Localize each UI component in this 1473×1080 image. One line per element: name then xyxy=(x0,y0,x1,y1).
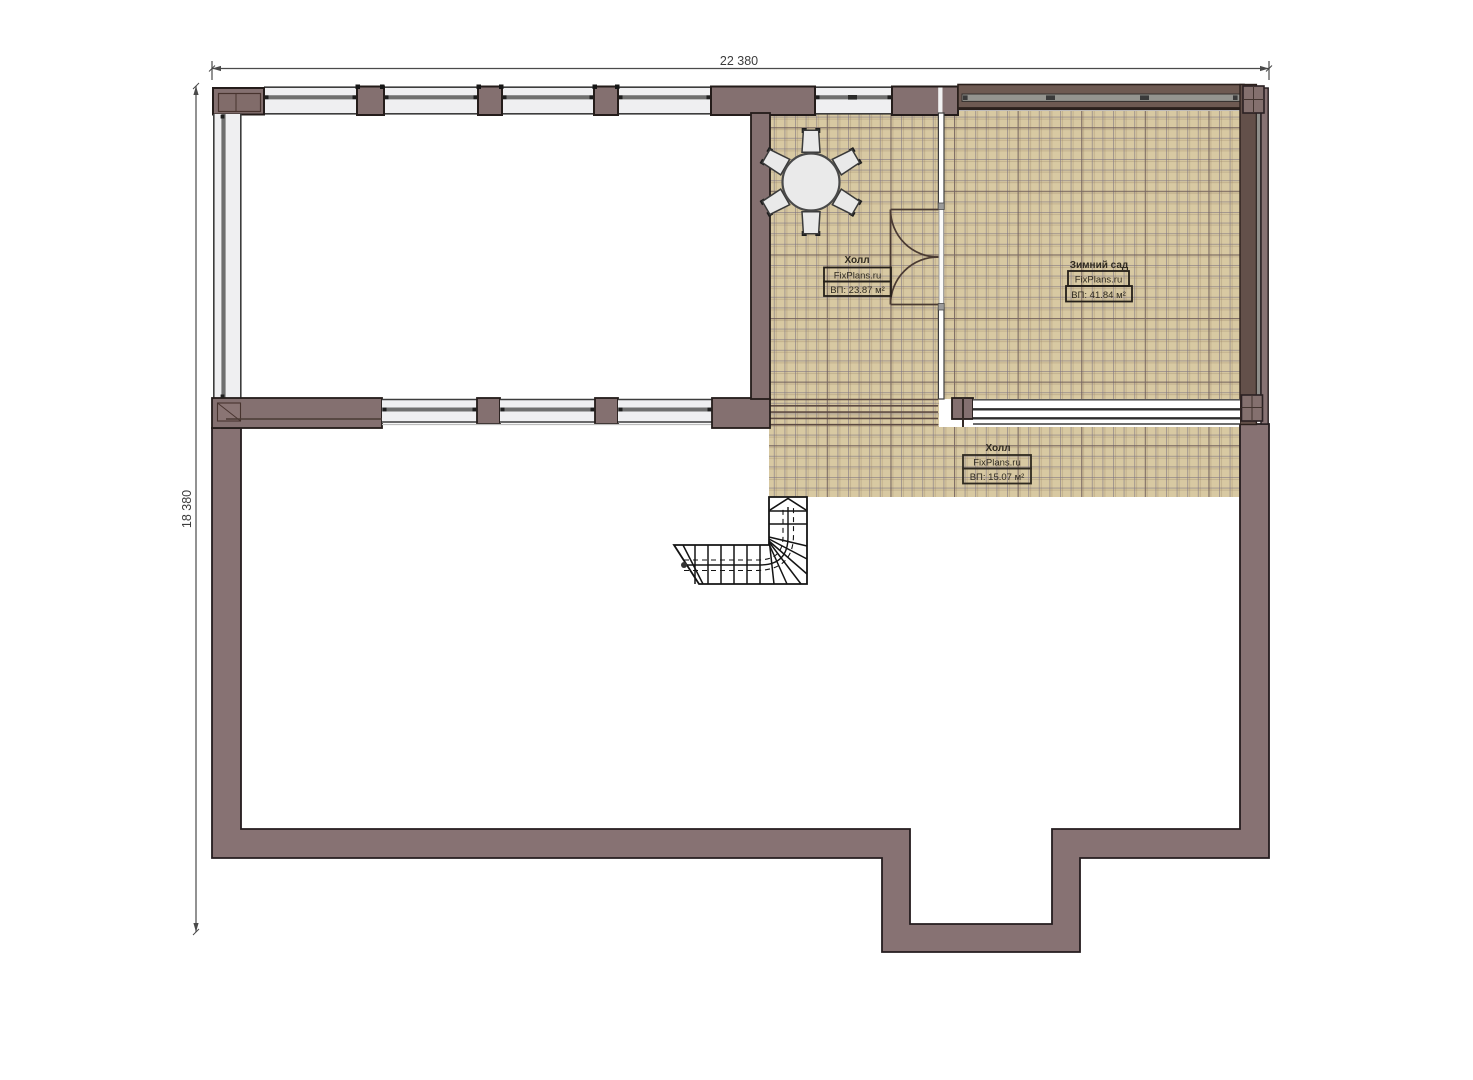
svg-text:ВП: 23.87 м²: ВП: 23.87 м² xyxy=(830,285,885,296)
svg-text:ВП: 15.07 м²: ВП: 15.07 м² xyxy=(970,472,1025,483)
svg-text:Зимний сад: Зимний сад xyxy=(1070,260,1129,271)
svg-text:ВП: 41.84 м²: ВП: 41.84 м² xyxy=(1071,290,1126,301)
svg-text:FixPlans.ru: FixPlans.ru xyxy=(973,458,1021,469)
svg-text:FixPlans.ru: FixPlans.ru xyxy=(834,271,882,282)
svg-text:18 380: 18 380 xyxy=(180,490,194,528)
svg-text:22 380: 22 380 xyxy=(720,54,758,68)
svg-text:Холл: Холл xyxy=(844,255,869,266)
svg-text:FixPlans.ru: FixPlans.ru xyxy=(1075,275,1123,286)
svg-text:Холл: Холл xyxy=(985,443,1010,454)
